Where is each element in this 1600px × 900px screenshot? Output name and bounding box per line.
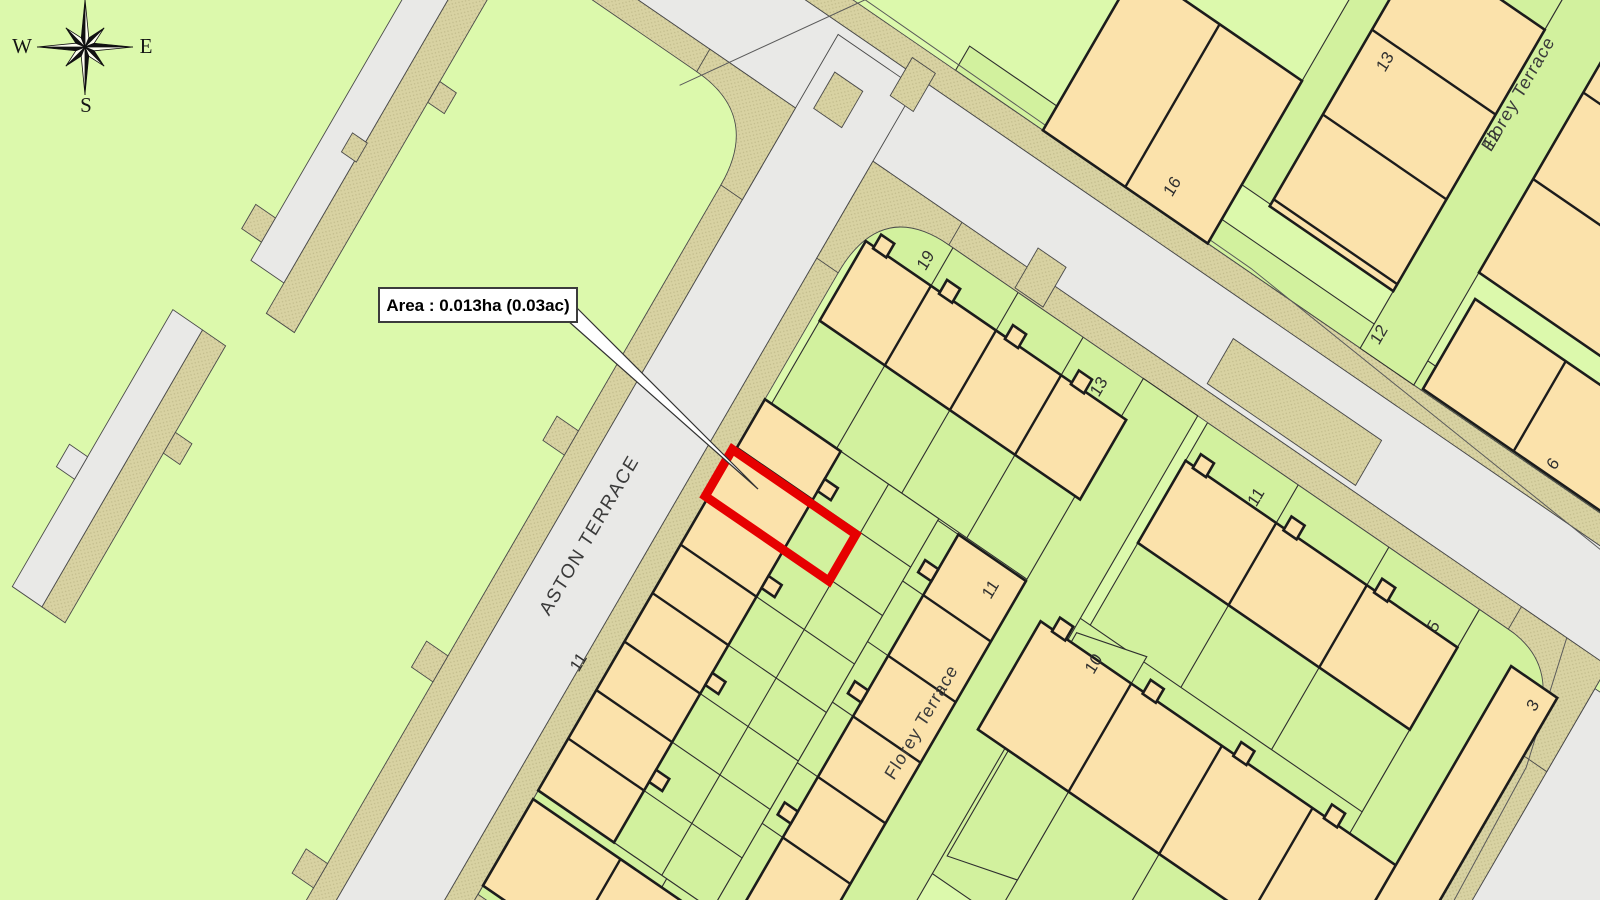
area-label-text: Area : 0.013ha (0.03ac) [386,296,569,315]
map-canvas[interactable]: ASTON TERRACE Florey Terrace Florey Terr… [0,0,1600,900]
compass-west-label: W [12,34,32,58]
site-plan-map: ASTON TERRACE Florey Terrace Florey Terr… [0,0,1600,900]
compass-south-label: S [80,93,92,117]
compass-east-label: E [140,34,153,58]
